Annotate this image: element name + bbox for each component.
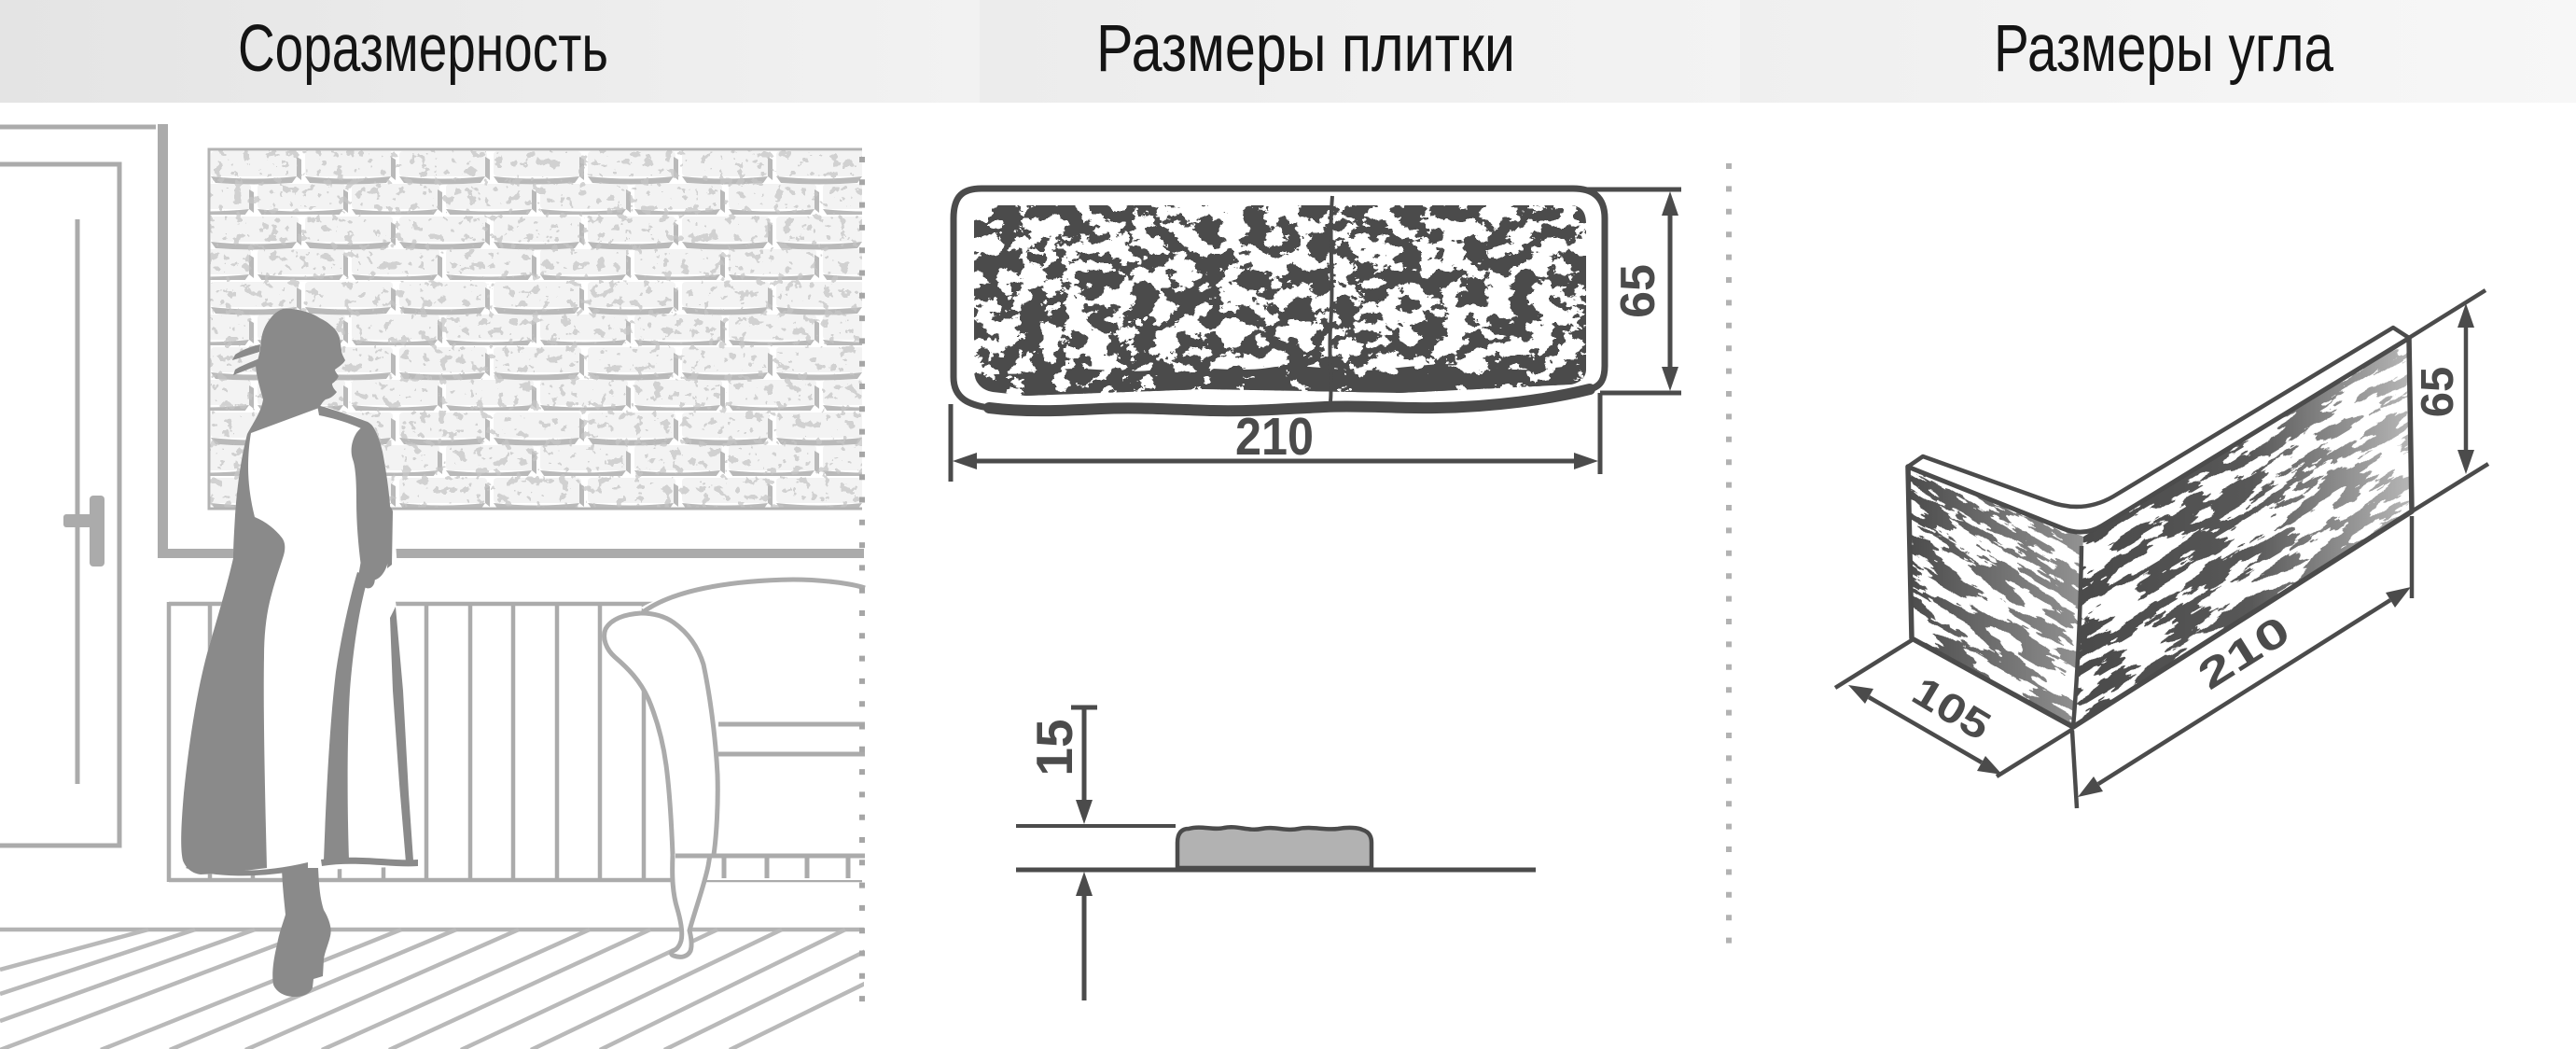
svg-text:65: 65 — [2413, 367, 2463, 418]
svg-text:Размеры угла: Размеры угла — [1994, 12, 2333, 86]
svg-text:Соразмерность: Соразмерность — [238, 12, 608, 86]
svg-text:65: 65 — [1611, 264, 1665, 318]
svg-text:210: 210 — [1235, 407, 1314, 467]
svg-text:Размеры плитки: Размеры плитки — [1096, 12, 1515, 86]
svg-text:15: 15 — [1025, 719, 1083, 776]
